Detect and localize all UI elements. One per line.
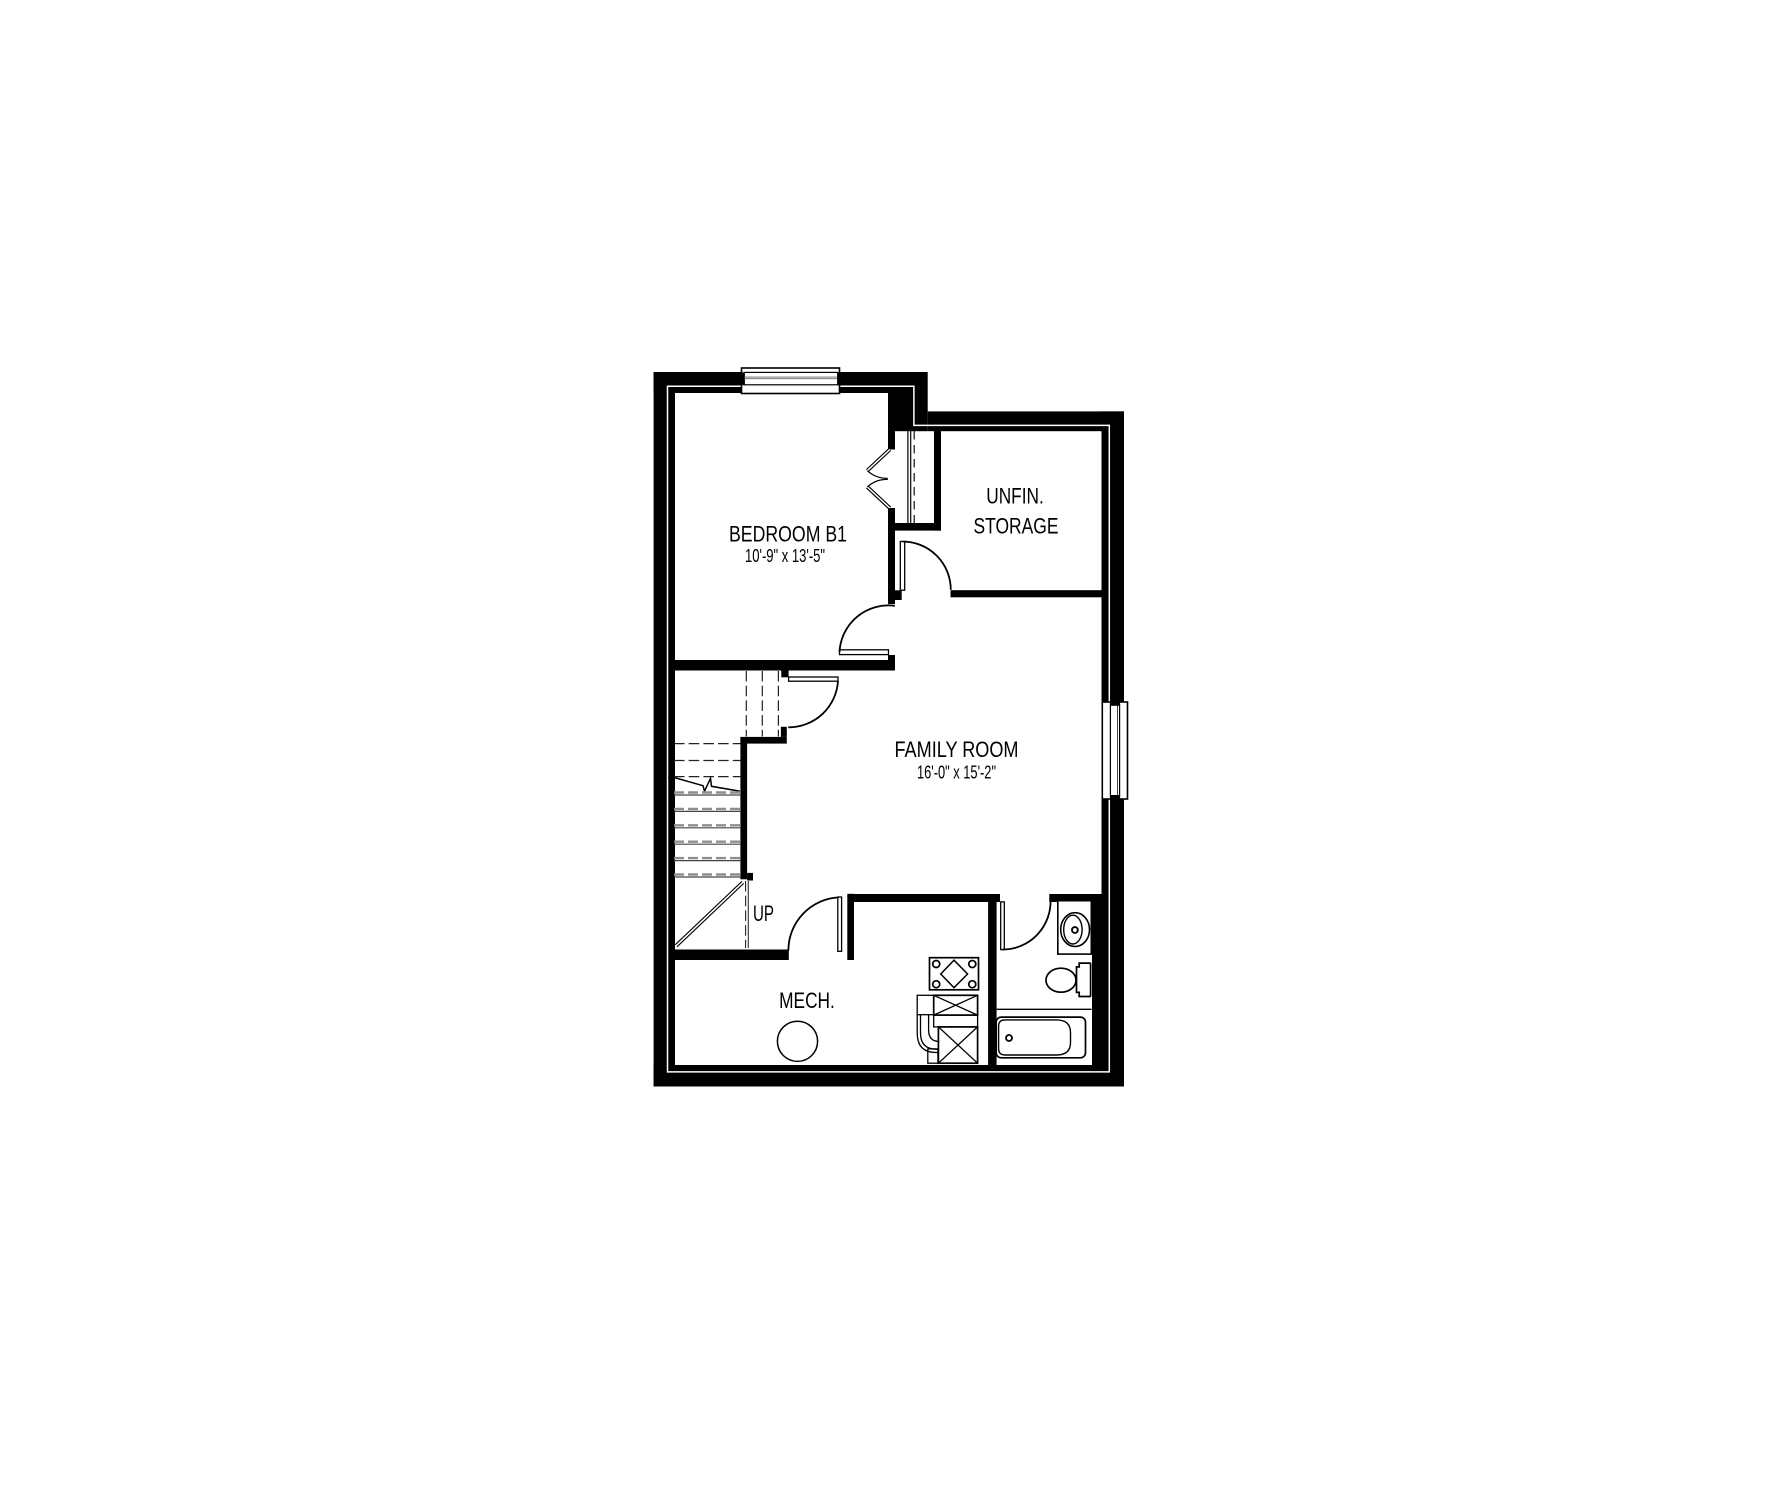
svg-text:BEDROOM B1: BEDROOM B1 — [729, 522, 847, 547]
svg-text:STORAGE: STORAGE — [974, 514, 1059, 539]
svg-text:UP: UP — [753, 901, 774, 926]
svg-text:UNFIN.: UNFIN. — [986, 483, 1044, 508]
svg-text:10'-9" x 13'-5": 10'-9" x 13'-5" — [745, 545, 825, 566]
svg-text:MECH.: MECH. — [779, 988, 835, 1013]
svg-text:FAMILY ROOM: FAMILY ROOM — [895, 737, 1019, 762]
svg-text:16'-0" x 15'-2": 16'-0" x 15'-2" — [917, 761, 996, 782]
